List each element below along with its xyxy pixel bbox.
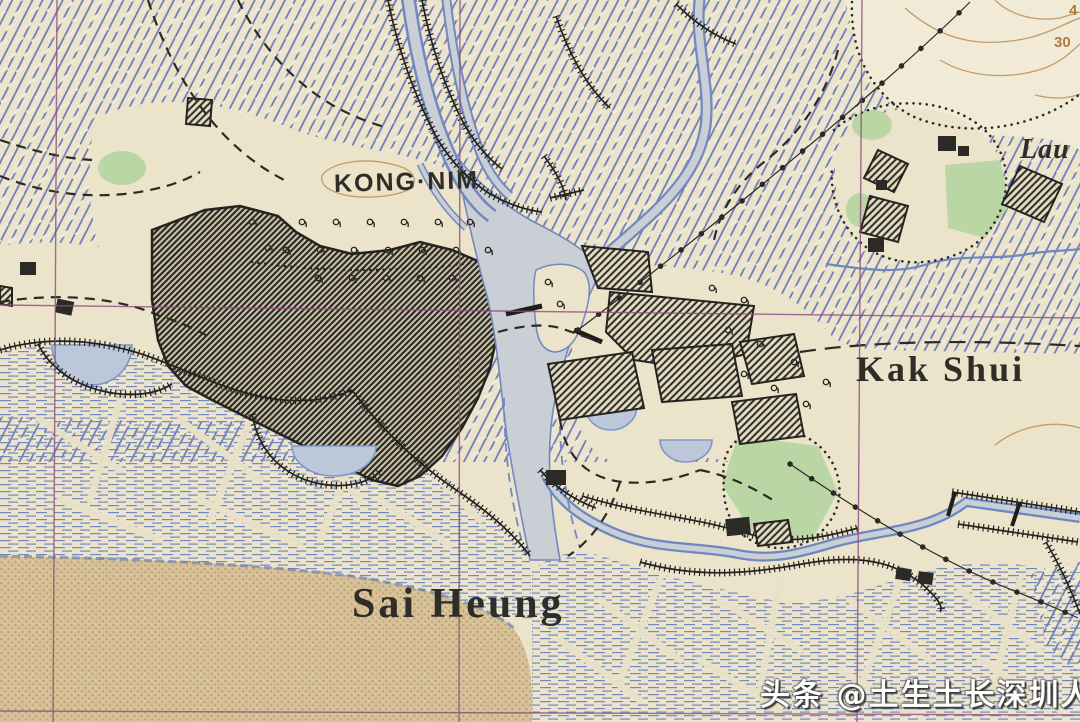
place-label-kak-shui: Kak Shui [856,348,1025,390]
place-label-sai-heung: Sai Heung [352,580,565,628]
place-label-kong-nim: KONG·NIM [334,166,480,199]
map-root: KONG·NIM Kak Shui Sai Heung Lau 4 30 头条 … [0,0,1080,722]
watermark-text: 头条 @土生土长深圳人 [760,670,1080,714]
place-label-lau: Lau [1020,134,1070,166]
contour-label-lower: 30 [1054,34,1071,51]
contour-label-upper: 4 [1069,2,1077,19]
